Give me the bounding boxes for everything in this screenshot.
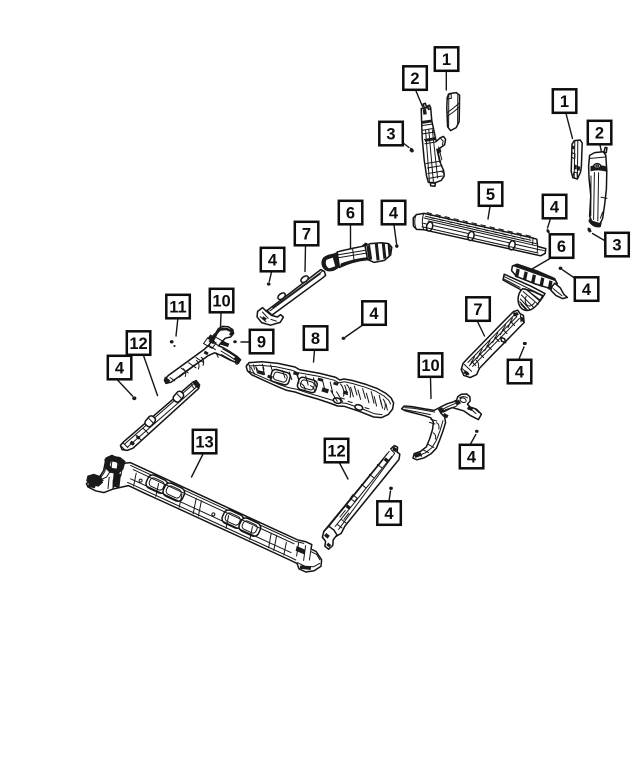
- svg-text:4: 4: [582, 281, 592, 299]
- svg-text:4: 4: [268, 252, 278, 270]
- svg-text:1: 1: [560, 93, 569, 111]
- svg-text:12: 12: [129, 335, 147, 353]
- svg-text:6: 6: [346, 205, 355, 223]
- svg-text:4: 4: [389, 205, 399, 223]
- svg-text:9: 9: [257, 334, 266, 352]
- svg-text:3: 3: [386, 126, 395, 144]
- svg-text:7: 7: [302, 226, 311, 244]
- svg-text:4: 4: [550, 199, 560, 217]
- svg-text:13: 13: [195, 434, 213, 452]
- svg-text:4: 4: [515, 364, 525, 382]
- svg-text:10: 10: [212, 293, 230, 311]
- svg-text:2: 2: [410, 70, 419, 88]
- svg-text:7: 7: [473, 301, 482, 319]
- svg-text:3: 3: [612, 237, 621, 255]
- svg-text:11: 11: [169, 299, 186, 317]
- svg-text:6: 6: [557, 238, 566, 256]
- svg-text:4: 4: [467, 449, 477, 467]
- svg-text:8: 8: [311, 330, 320, 348]
- svg-text:10: 10: [421, 357, 439, 375]
- svg-text:4: 4: [115, 360, 125, 378]
- svg-text:2: 2: [595, 125, 604, 143]
- svg-text:5: 5: [486, 186, 495, 204]
- svg-text:4: 4: [384, 505, 394, 523]
- svg-text:1: 1: [442, 51, 451, 69]
- svg-text:12: 12: [327, 443, 345, 461]
- svg-text:4: 4: [369, 305, 379, 323]
